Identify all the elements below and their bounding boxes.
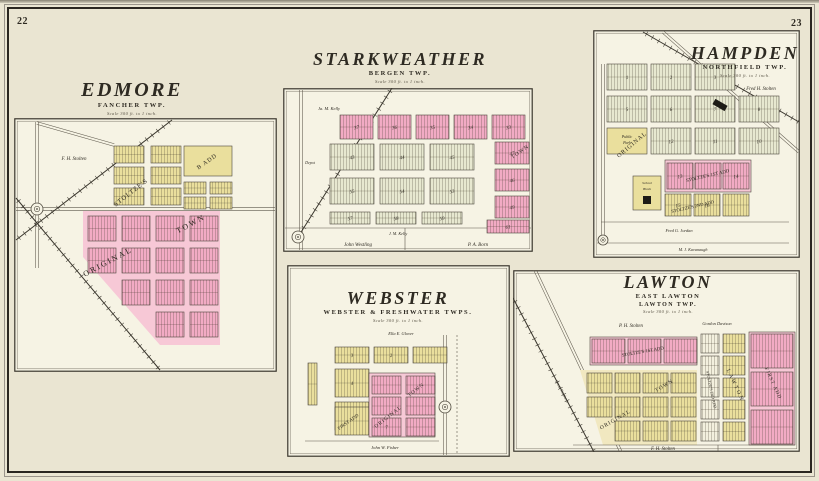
svg-text:School: School [642, 181, 652, 185]
panel-webster-map: 3247Ella E. GloverFIRST ADDORIGINALTOWNJ… [287, 265, 510, 457]
svg-text:Block: Block [643, 187, 651, 191]
scan-edge [0, 0, 819, 3]
owner-label: J. M. Kelly [389, 231, 408, 236]
svg-text:11: 11 [713, 140, 718, 146]
webster-map-drawing: 3247Ella E. GloverFIRST ADDORIGINALTOWNJ… [287, 265, 510, 457]
edmore-map-drawing: F. H. StoltenSTOLTZE'SB ADDORIGINALTOWN [14, 118, 277, 372]
owner-label: M. J. Kavanaugh [678, 247, 708, 252]
edmore-title: EDMOREFANCHER TWP.Scale 300 ft. to 1 inc… [81, 80, 183, 116]
owner-label: F. H. Stolten [650, 447, 675, 452]
town-blocks-row2: 555453 [330, 178, 474, 204]
town-blocks-row1: 123 [607, 64, 735, 90]
section-corner-marker [31, 203, 43, 215]
owner-label: John Westling [344, 243, 373, 248]
lawton-map-drawing: Great NorthernSTOLTZE'S 1ST ADDORIGINALT… [513, 270, 800, 452]
starkweather-title-main: STARKWEATHER [313, 50, 487, 68]
page-number-right: 23 [791, 18, 802, 29]
school-label: School [642, 181, 652, 185]
owner-label: Fred H. Stolten [745, 87, 776, 92]
section-corner-marker [598, 235, 608, 245]
town-blocks-row1: 434445 [330, 144, 474, 170]
panel-lawton-map: Great NorthernSTOLTZE'S 1ST ADDORIGINALT… [513, 270, 800, 452]
elevator-strip [308, 363, 317, 405]
svg-text:61: 61 [505, 225, 511, 231]
svg-text:M. J. Kavanaugh: M. J. Kavanaugh [678, 247, 708, 252]
school-label: Block [643, 187, 651, 191]
owner-label: P. H. Stolten [618, 324, 643, 329]
panel-edmore-map: F. H. StoltenSTOLTZE'SB ADDORIGINALTOWN [14, 118, 277, 372]
panel-starkweather-map: 373635343347464961434445555453575859Ja. … [283, 88, 533, 252]
starkweather-title-sub: BERGEN TWP. [313, 71, 487, 78]
north-blocks: 32 [335, 347, 447, 363]
owner-label: John W. Fisher [371, 445, 399, 450]
section-corner-marker [292, 231, 304, 243]
block-61: 61 [487, 220, 529, 233]
owner-label: Ja. M. Kelly [318, 106, 340, 111]
depot-label: Depot [304, 160, 316, 165]
svg-text:F. H. Stolten: F. H. Stolten [61, 157, 87, 162]
north-blocks: 3736353433 [340, 115, 525, 139]
atlas-sheet: 22 23 F. H. StoltenSTOLTZE'SB ADDORIGINA… [0, 0, 819, 481]
school-building [643, 196, 651, 204]
starkweather-map-drawing: 373635343347464961434445555453575859Ja. … [283, 88, 533, 252]
svg-text:John Westling: John Westling [344, 243, 373, 248]
svg-text:Gordon Davison: Gordon Davison [702, 321, 732, 326]
edmore-title-main: EDMORE [81, 80, 183, 100]
town-blocks-row3: 121110 [651, 128, 779, 154]
edmore-title-scale: Scale 300 ft. to 1 inch. [81, 112, 183, 117]
svg-text:Public: Public [621, 134, 633, 139]
svg-text:John W. Fisher: John W. Fisher [371, 445, 399, 450]
page-number-left: 22 [17, 16, 28, 27]
svg-text:P. A. Born: P. A. Born [467, 243, 489, 248]
public-park-label: Public [621, 134, 633, 139]
svg-text:Depot: Depot [304, 160, 316, 165]
svg-text:P. H. Stolten: P. H. Stolten [618, 324, 643, 329]
starkweather-title: STARKWEATHERBERGEN TWP.Scale 300 ft. to … [313, 50, 487, 84]
svg-text:Fred G. Jordan: Fred G. Jordan [664, 228, 693, 233]
owner-label: Gordon Davison [702, 321, 732, 326]
section-corner-marker [439, 401, 451, 413]
hampden-map-drawing: 1235678121110PublicParkORIGINALSchoolBlo… [593, 30, 800, 258]
svg-text:J. M. Kelly: J. M. Kelly [389, 231, 408, 236]
panel-hampden-map: 1235678121110PublicParkORIGINALSchoolBlo… [593, 30, 800, 258]
starkweather-title-scale: Scale 300 ft. to 1 inch. [313, 80, 487, 85]
svg-text:F. H. Stolten: F. H. Stolten [650, 447, 675, 452]
svg-text:Ja. M. Kelly: Ja. M. Kelly [318, 106, 340, 111]
edmore-title-sub: FANCHER TWP. [81, 103, 183, 110]
svg-text:Ella E. Glover: Ella E. Glover [387, 331, 414, 336]
owner-label: F. H. Stolten [61, 157, 87, 162]
owner-label: P. A. Born [467, 243, 489, 248]
town-blocks-row3: 575859 [330, 212, 462, 224]
svg-text:Fred H. Stolten: Fred H. Stolten [745, 87, 776, 92]
owner-label: Ella E. Glover [387, 331, 414, 336]
first-add-blocks [751, 334, 793, 444]
owner-label: Fred G. Jordan [664, 228, 693, 233]
